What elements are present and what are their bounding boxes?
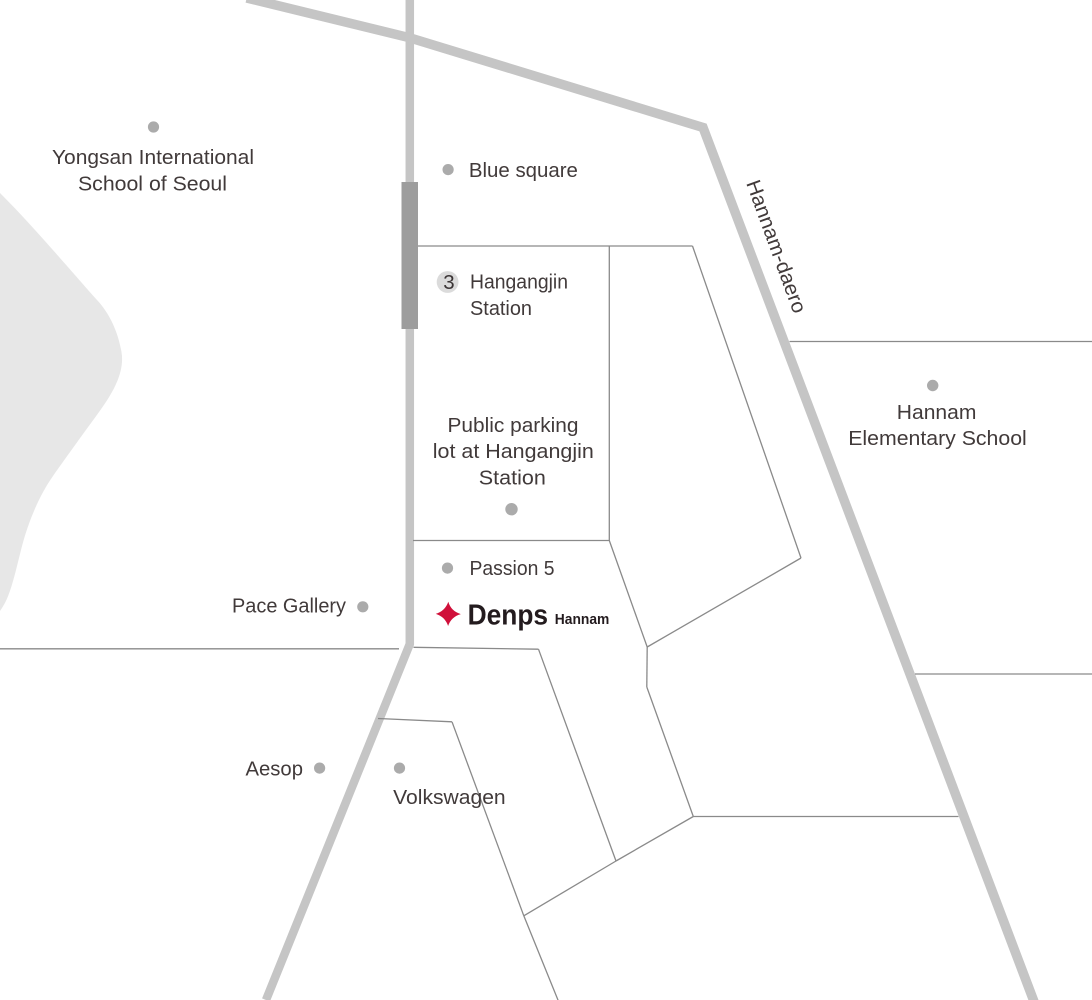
svg-text:lot at Hangangjin: lot at Hangangjin xyxy=(433,441,594,463)
svg-text:Public parking: Public parking xyxy=(448,415,579,437)
svg-text:School of Seoul: School of Seoul xyxy=(78,173,227,195)
svg-text:Volkswagen: Volkswagen xyxy=(393,787,506,809)
svg-text:Hangangjin: Hangangjin xyxy=(470,272,568,294)
svg-text:Aesop: Aesop xyxy=(246,759,304,781)
svg-text:Passion 5: Passion 5 xyxy=(470,558,555,580)
svg-text:Station: Station xyxy=(470,298,532,320)
svg-text:Elementary School: Elementary School xyxy=(848,428,1027,450)
svg-text:Pace Gallery: Pace Gallery xyxy=(232,596,347,618)
svg-text:Hannam: Hannam xyxy=(555,612,610,628)
svg-text:3: 3 xyxy=(443,271,454,294)
svg-text:Hannam: Hannam xyxy=(897,402,977,424)
svg-text:Station: Station xyxy=(479,467,546,489)
svg-text:Yongsan International: Yongsan International xyxy=(52,147,254,169)
svg-text:Blue square: Blue square xyxy=(469,160,578,182)
svg-text:Denps: Denps xyxy=(468,600,548,632)
